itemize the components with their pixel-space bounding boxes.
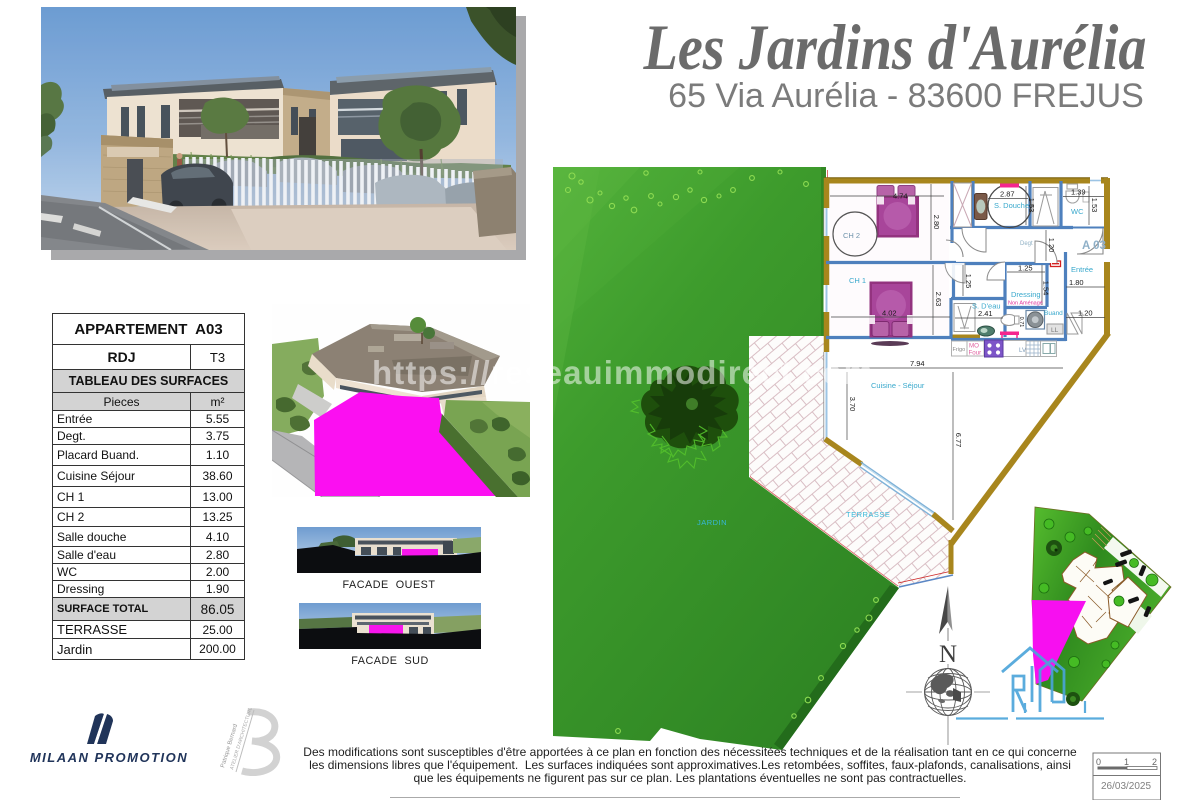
svg-text:1.25: 1.25 xyxy=(1018,264,1033,273)
svg-text:6.77: 6.77 xyxy=(954,433,963,448)
svg-text:CH 2: CH 2 xyxy=(843,231,860,240)
svg-text:Frigo: Frigo xyxy=(953,347,966,353)
svg-text:1.39: 1.39 xyxy=(1071,188,1086,197)
svg-text:3.70: 3.70 xyxy=(848,397,857,412)
svg-text:N: N xyxy=(939,641,957,668)
svg-text:1.20: 1.20 xyxy=(1047,238,1056,253)
svg-text:Degt: Degt xyxy=(1020,241,1033,247)
svg-text:JARDIN: JARDIN xyxy=(697,518,727,527)
svg-text:Dressing: Dressing xyxy=(1011,290,1041,299)
svg-text:0: 0 xyxy=(1096,757,1101,767)
svg-text:0.71: 0.71 xyxy=(1018,317,1024,328)
svg-text:26/03/2025: 26/03/2025 xyxy=(1101,781,1151,792)
svg-text:2.80: 2.80 xyxy=(932,215,941,230)
svg-text:2.63: 2.63 xyxy=(934,292,943,307)
svg-text:CH 1: CH 1 xyxy=(849,276,866,285)
svg-text:1.20: 1.20 xyxy=(1078,309,1093,318)
svg-text:Four: Four xyxy=(969,350,982,357)
svg-text:LV: LV xyxy=(1019,347,1027,354)
svg-text:2: 2 xyxy=(1152,757,1157,767)
svg-text:Non Aménagé: Non Aménagé xyxy=(1008,301,1043,307)
svg-text:S. D'eau: S. D'eau xyxy=(972,302,1001,311)
svg-text:7.94: 7.94 xyxy=(910,359,925,368)
svg-text:S. Douche: S. Douche xyxy=(994,201,1029,210)
svg-text:Entrée: Entrée xyxy=(1071,265,1093,274)
svg-text:Buand: Buand xyxy=(1044,310,1063,317)
svg-text:TERRASSE: TERRASSE xyxy=(846,510,890,519)
svg-text:WC: WC xyxy=(1071,207,1084,216)
svg-text:4.02: 4.02 xyxy=(882,309,897,318)
svg-text:1.53: 1.53 xyxy=(1090,198,1099,213)
svg-text:A 03: A 03 xyxy=(1082,240,1106,252)
svg-text:MO: MO xyxy=(969,343,979,350)
svg-text:4.74: 4.74 xyxy=(893,192,908,201)
svg-text:1.25: 1.25 xyxy=(964,274,973,289)
svg-text:1.80: 1.80 xyxy=(1069,278,1084,287)
svg-text:1: 1 xyxy=(1124,757,1129,767)
svg-text:LL: LL xyxy=(1051,327,1059,334)
svg-text:2.87: 2.87 xyxy=(1000,190,1015,199)
svg-text:1.54: 1.54 xyxy=(1042,281,1051,296)
